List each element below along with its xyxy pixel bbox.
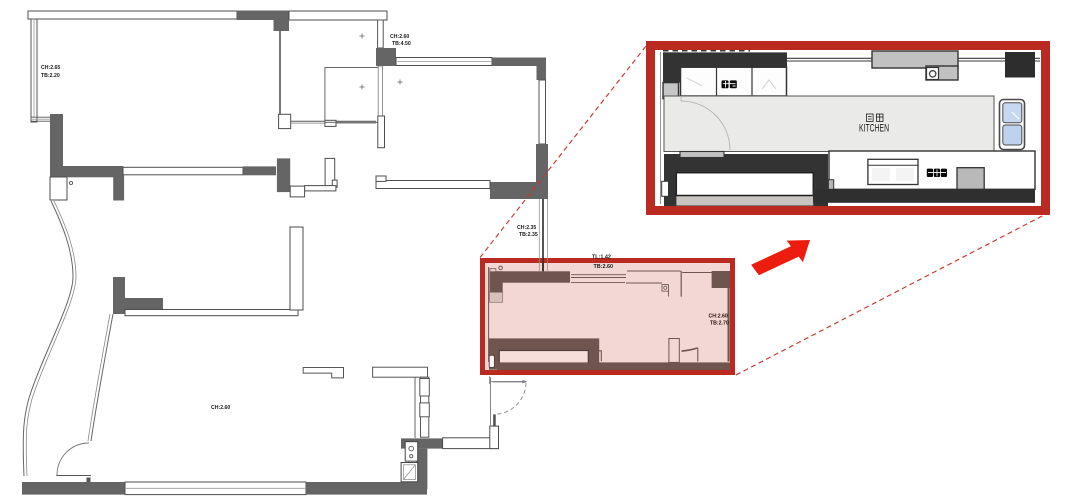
svg-text:CH:2.65: CH:2.65: [41, 65, 60, 71]
svg-text:TB:2.60: TB:2.60: [594, 264, 613, 270]
svg-text:CH:2.60: CH:2.60: [211, 405, 230, 411]
svg-text:CH:2.60: CH:2.60: [709, 314, 728, 320]
svg-text:CH:2.35: CH:2.35: [517, 225, 536, 231]
svg-text:CH:2.60: CH:2.60: [390, 34, 409, 40]
svg-text:TB:2.70: TB:2.70: [710, 321, 729, 327]
svg-text:TB:4.50: TB:4.50: [392, 41, 411, 47]
svg-text:TB:2.20: TB:2.20: [41, 73, 60, 79]
svg-text:TB:2.35: TB:2.35: [519, 232, 538, 238]
svg-text:KITCHEN: KITCHEN: [859, 123, 889, 135]
svg-text:TL:1.42: TL:1.42: [592, 255, 611, 261]
